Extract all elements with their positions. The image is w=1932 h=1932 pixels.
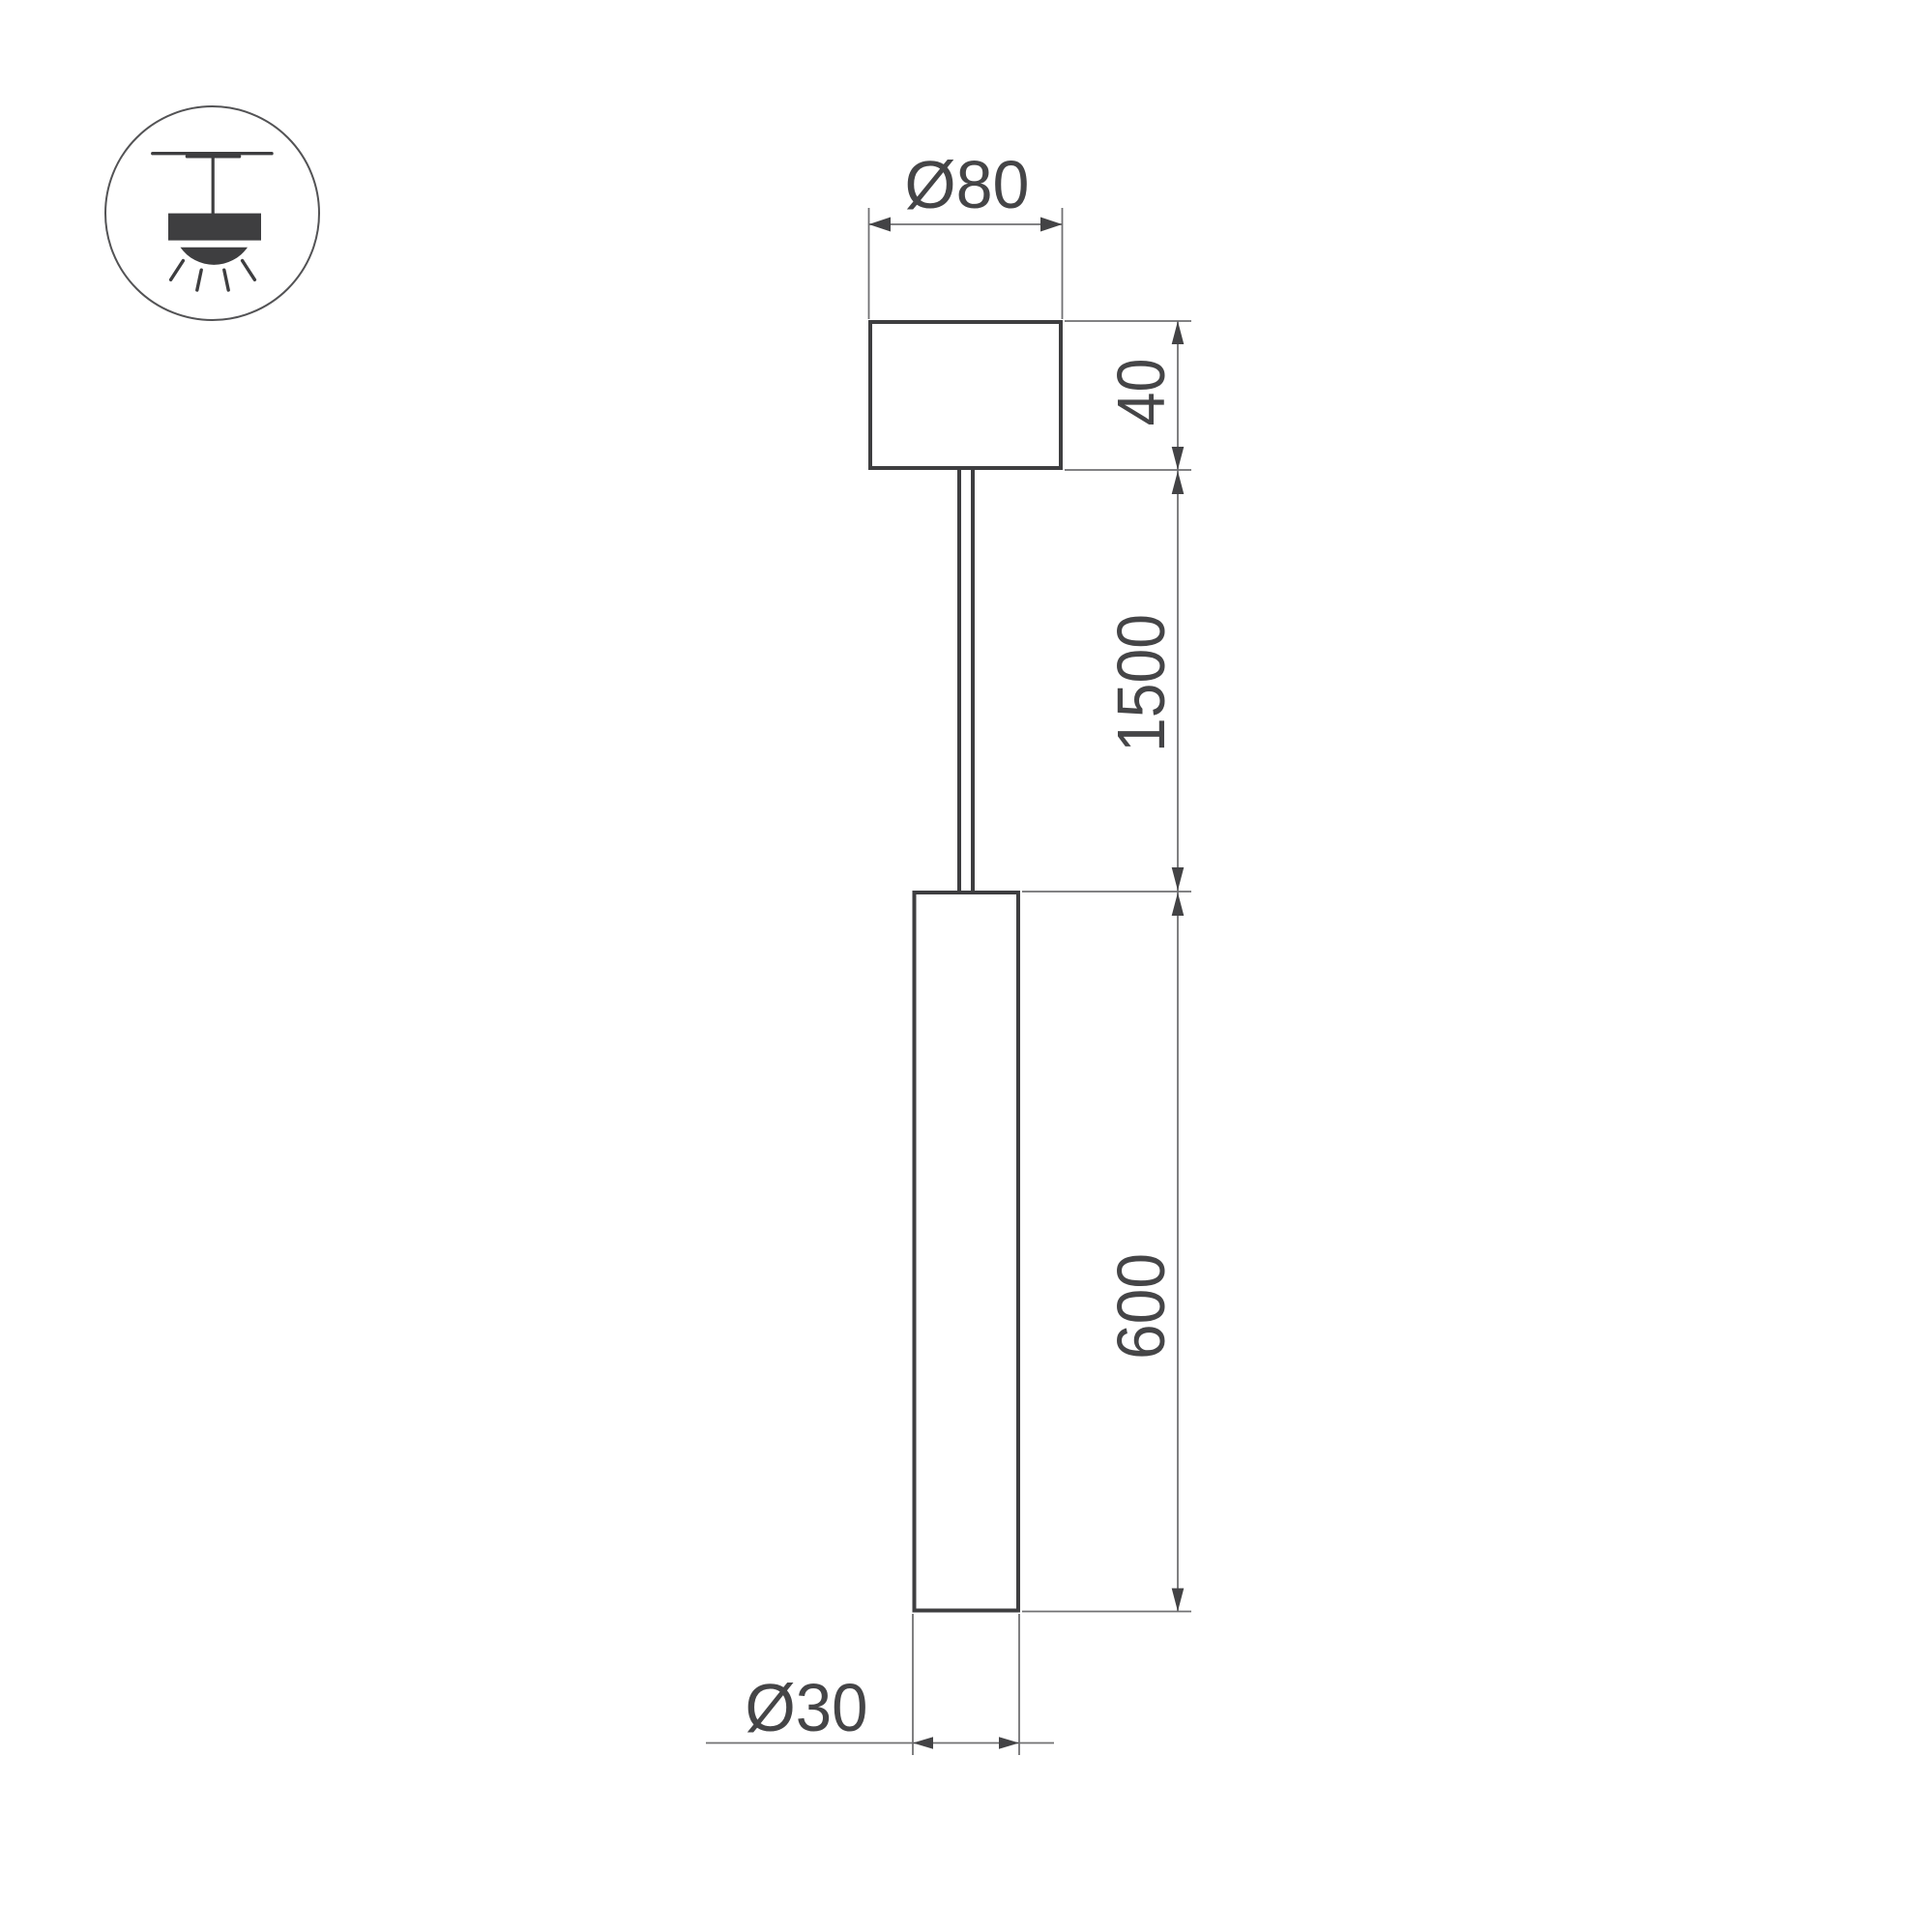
svg-text:600: 600 [1103,1253,1179,1360]
svg-text:Ø30: Ø30 [746,1670,868,1745]
svg-text:40: 40 [1103,359,1179,426]
svg-text:1500: 1500 [1103,614,1179,752]
svg-text:Ø80: Ø80 [905,147,1030,222]
